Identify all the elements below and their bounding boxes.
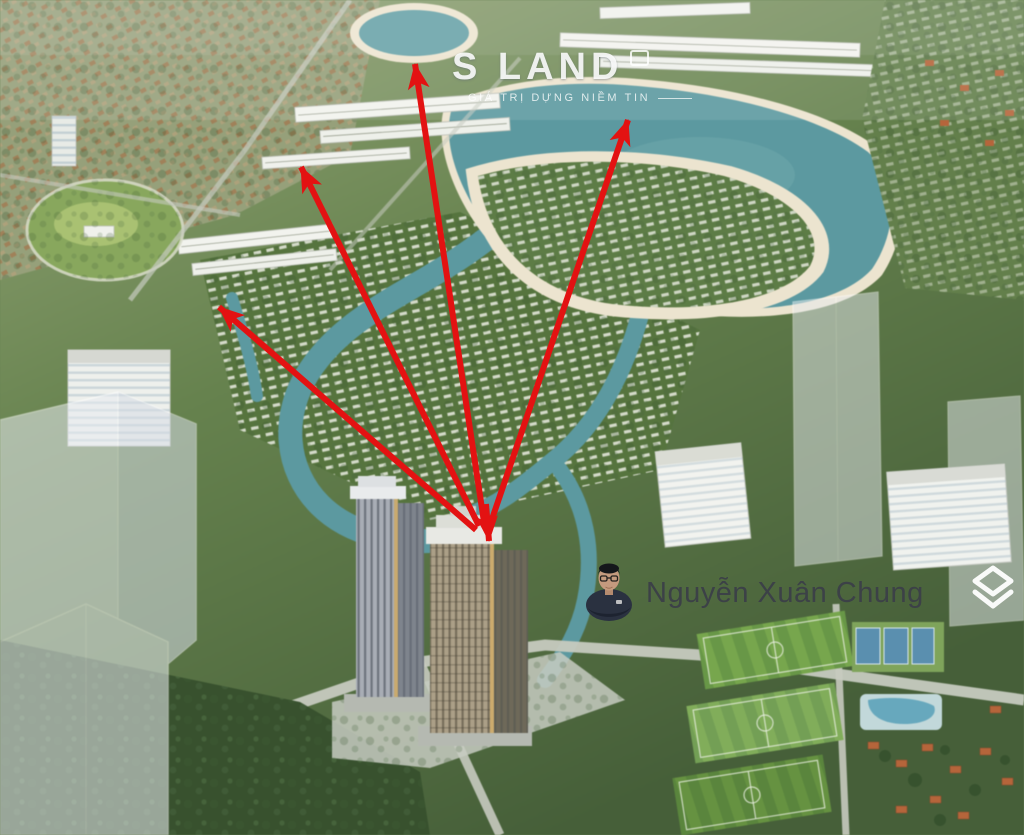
watermark-tagline-dash <box>658 98 692 99</box>
aerial-scene <box>0 0 1024 835</box>
tennis-courts <box>852 622 944 672</box>
watermark-registered-box-icon <box>630 50 649 66</box>
sports-fields <box>672 611 853 835</box>
ghost-towers-left <box>0 392 196 835</box>
brand-diamond-logo-icon <box>969 564 1017 612</box>
agent-name: Nguyễn Xuân Chung <box>646 577 924 610</box>
hotel-building <box>655 443 751 547</box>
watermark-tagline: GIÁ TRỊ DỰNG NIỀM TIN <box>468 92 650 104</box>
aerial-render-screenshot: S LAND GIÁ TRỊ DỰNG NIỀM TIN Nguyễn Xuân… <box>0 0 1024 835</box>
watermark: S LAND GIÁ TRỊ DỰNG NIỀM TIN <box>452 48 692 104</box>
swimming-pool <box>860 694 942 730</box>
agent-avatar <box>584 556 636 622</box>
watermark-brand: S LAND <box>452 48 623 86</box>
tower-left <box>344 476 432 712</box>
